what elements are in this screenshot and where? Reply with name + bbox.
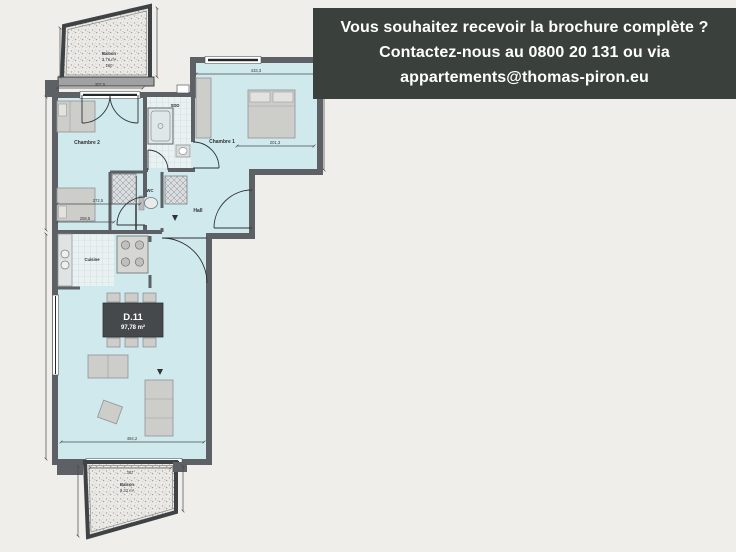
- label-chambre1: Chambre 1: [209, 139, 235, 145]
- label-cuisine: Cuisine: [84, 257, 100, 262]
- dim-chambre1-inner: 201,3: [270, 140, 281, 145]
- wall-vent: [177, 85, 189, 93]
- dim-corridor: 258,5: [80, 216, 91, 221]
- banner-line-1: Vous souhaitez recevoir la brochure comp…: [341, 18, 709, 39]
- dim-chambre2-lower: 272,5: [93, 198, 104, 203]
- balcony-top-width: 260: [106, 63, 114, 68]
- screenshot-stage: Balcon 3,76 m² 260: [0, 0, 736, 552]
- banner-line-2: Contactez-nous au 0800 20 131 ou via: [379, 43, 670, 64]
- label-hall: Hall: [193, 208, 203, 214]
- window-chambre1: [205, 57, 261, 64]
- technical-shaft: [165, 176, 187, 204]
- label-sdd: SDD: [171, 103, 180, 108]
- balcony-bottom-area: 9,32 m²: [120, 488, 135, 493]
- label-chambre2: Chambre 2: [74, 140, 100, 146]
- dim-balcon-bottom-width: 307: [127, 470, 135, 475]
- brochure-banner: Vous souhaitez recevoir la brochure comp…: [313, 8, 736, 99]
- dim-sejour-width: 484,2: [127, 436, 138, 441]
- balcony-bottom: Balcon 9,32 m²: [57, 462, 187, 537]
- balcony-top-area: 3,76 m²: [102, 57, 117, 62]
- balcony-top-label: Balcon: [102, 51, 116, 56]
- balcony-bottom-label: Balcon: [120, 482, 134, 487]
- window-sejour-left: [53, 295, 59, 375]
- dim-chambre2-top: 307,5: [95, 82, 106, 87]
- label-wc: WC: [147, 188, 154, 193]
- banner-line-3: appartements@thomas-piron.eu: [400, 68, 649, 89]
- label-unit-id: D.11: [123, 312, 143, 323]
- label-unit-area: 97,78 m²: [121, 324, 145, 331]
- dim-chambre1-width: 433,3: [251, 68, 262, 73]
